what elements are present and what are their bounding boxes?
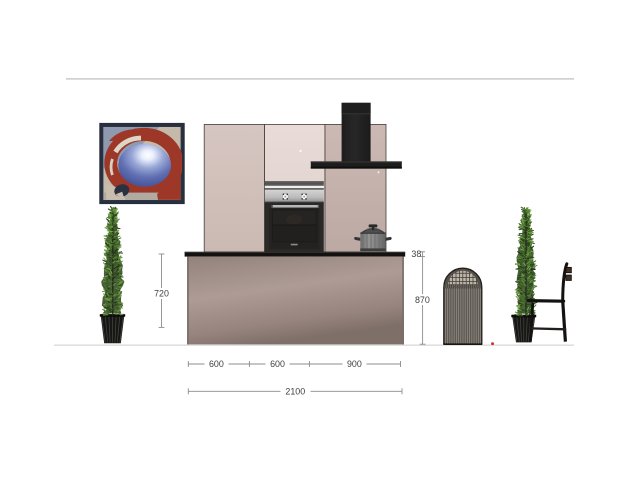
svg-text:600: 600 [209, 359, 224, 369]
svg-text:720: 720 [154, 288, 169, 298]
svg-text:600: 600 [270, 359, 285, 369]
svg-text:900: 900 [347, 359, 362, 369]
svg-text:2100: 2100 [285, 387, 305, 397]
svg-text:870: 870 [415, 295, 430, 305]
svg-text:38: 38 [411, 249, 421, 259]
